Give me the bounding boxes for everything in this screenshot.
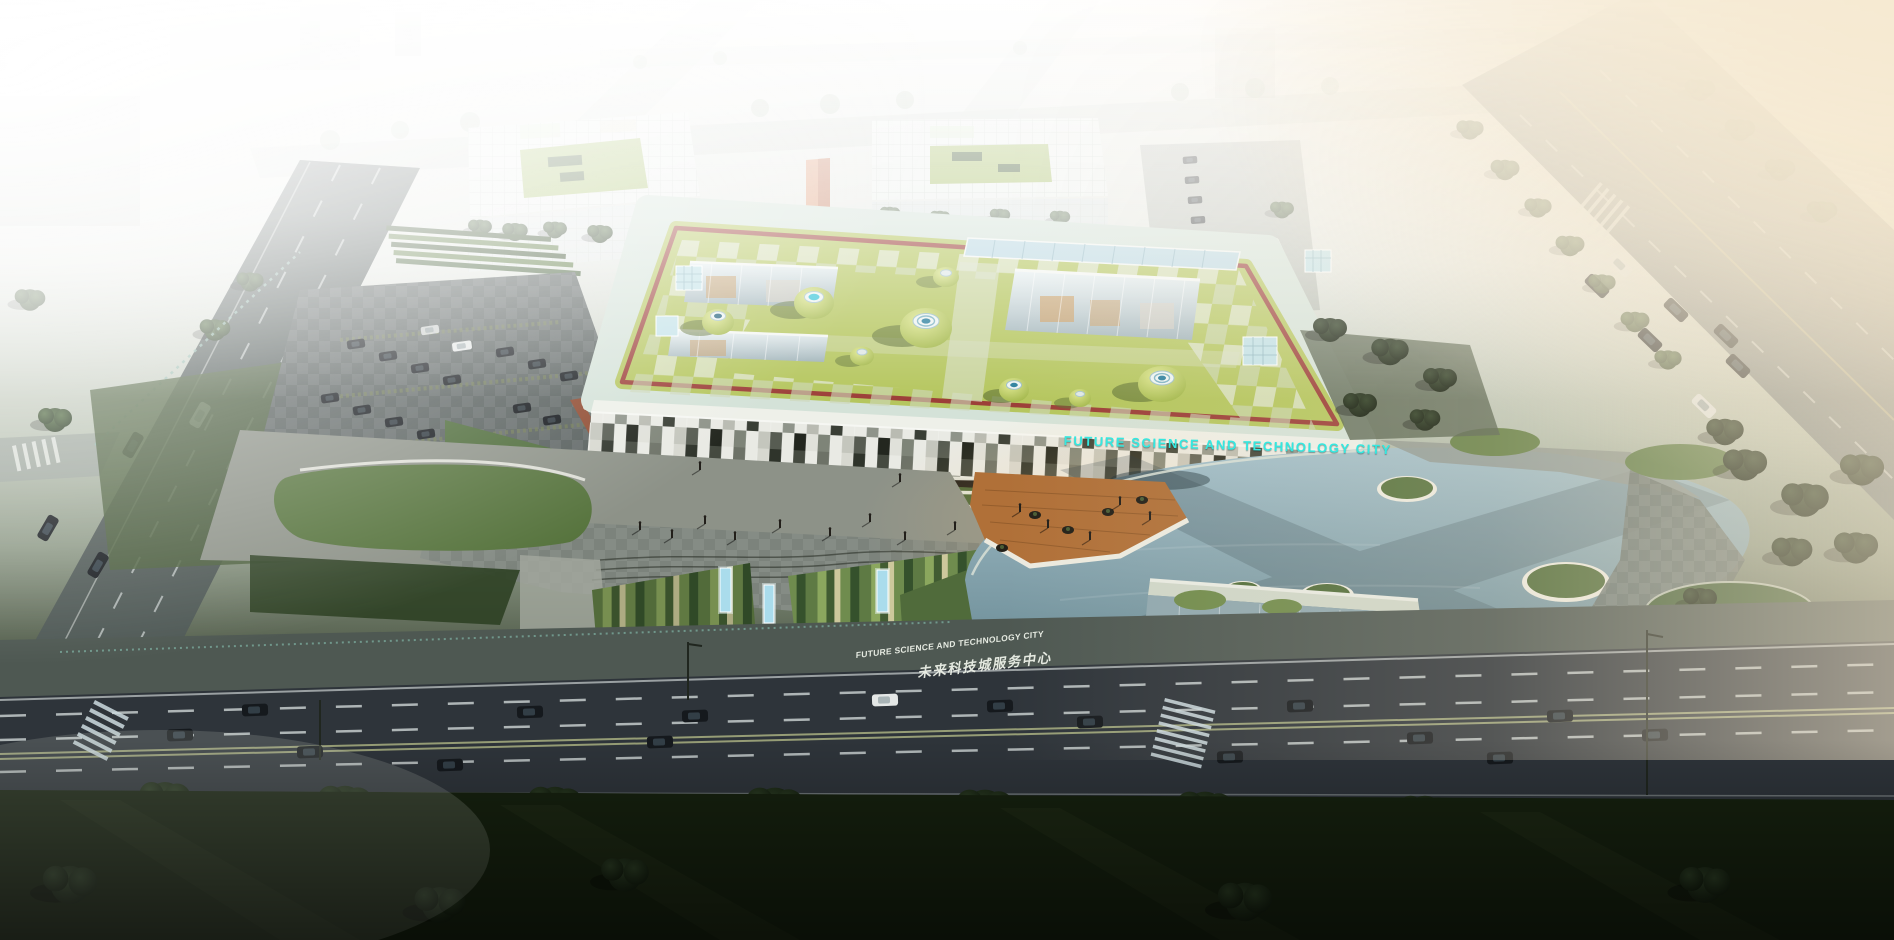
aerial-rendering-stage: FUTURE SCIENCE AND TECHNOLOGY CITY FUTUR… (0, 0, 1894, 940)
atmosphere-haze (0, 0, 1894, 940)
aerial-rendering-art (0, 0, 1894, 940)
